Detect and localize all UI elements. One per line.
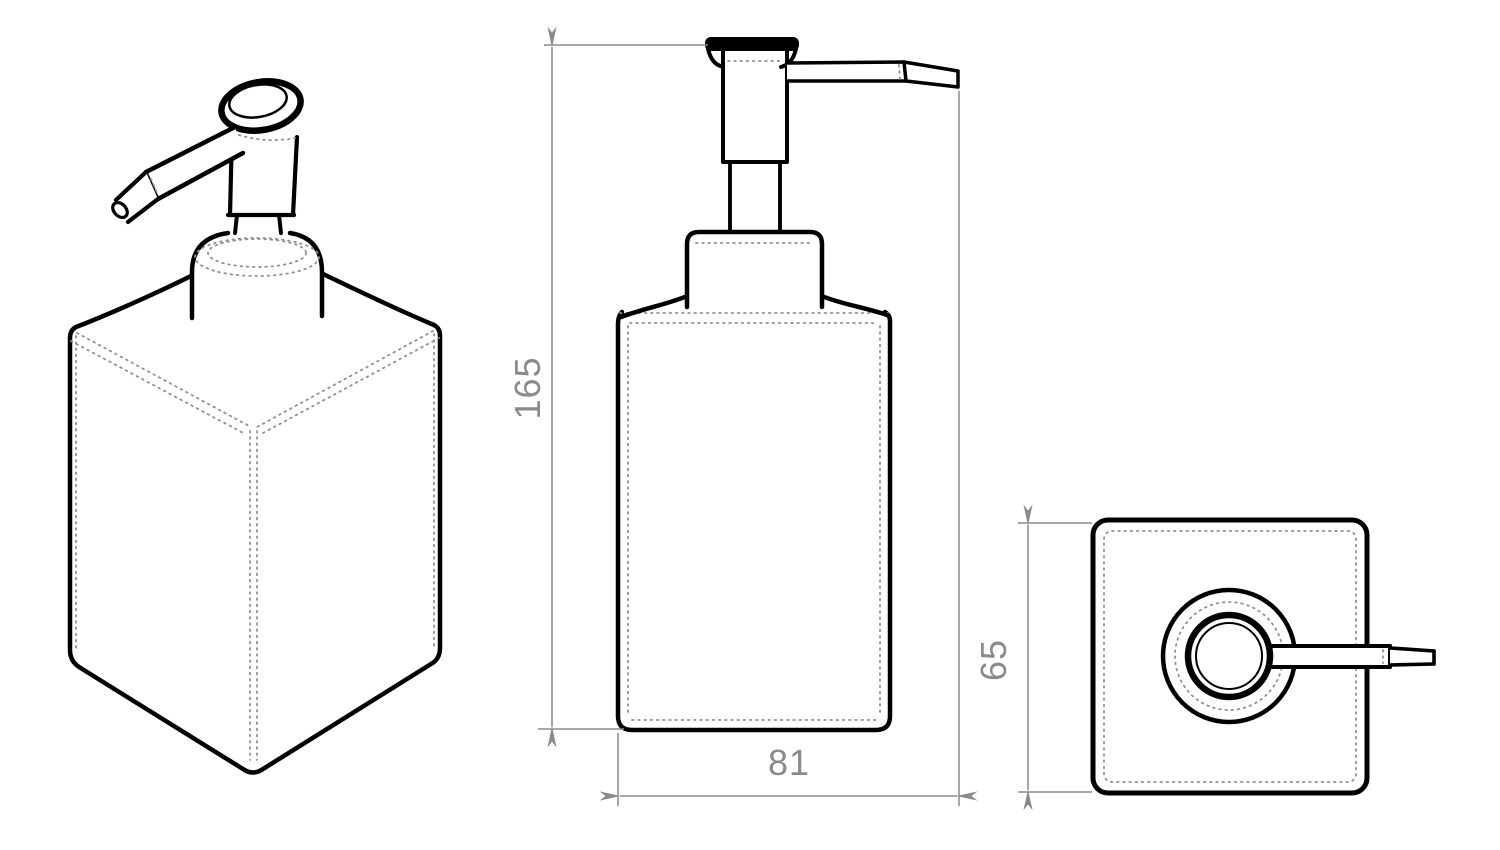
top-pump-ring-bold [1188,615,1270,697]
dim-label-depth: 65 [973,639,1014,681]
front-pump-tube [730,162,780,234]
front-body [618,312,890,730]
isometric-view [70,75,440,772]
front-pump-head [723,48,787,162]
front-pump-cap [706,38,798,50]
technical-drawing-page: 165 81 65 [0,0,1500,850]
dim-label-width: 81 [768,742,810,783]
front-spout-dotted [899,65,900,79]
top-view [1093,520,1434,793]
iso-top-edge-left [76,275,193,327]
technical-drawing-canvas: 165 81 65 [0,0,1500,850]
iso-top-edge-right [321,273,434,325]
iso-pump-tube [235,215,281,233]
dimension-depth [1018,523,1092,792]
front-view [618,38,958,730]
front-pump-cap-flare-left [708,49,723,67]
dim-label-height: 165 [507,356,548,419]
front-pump-tube-over [730,162,780,232]
iso-body-fill [70,325,440,773]
